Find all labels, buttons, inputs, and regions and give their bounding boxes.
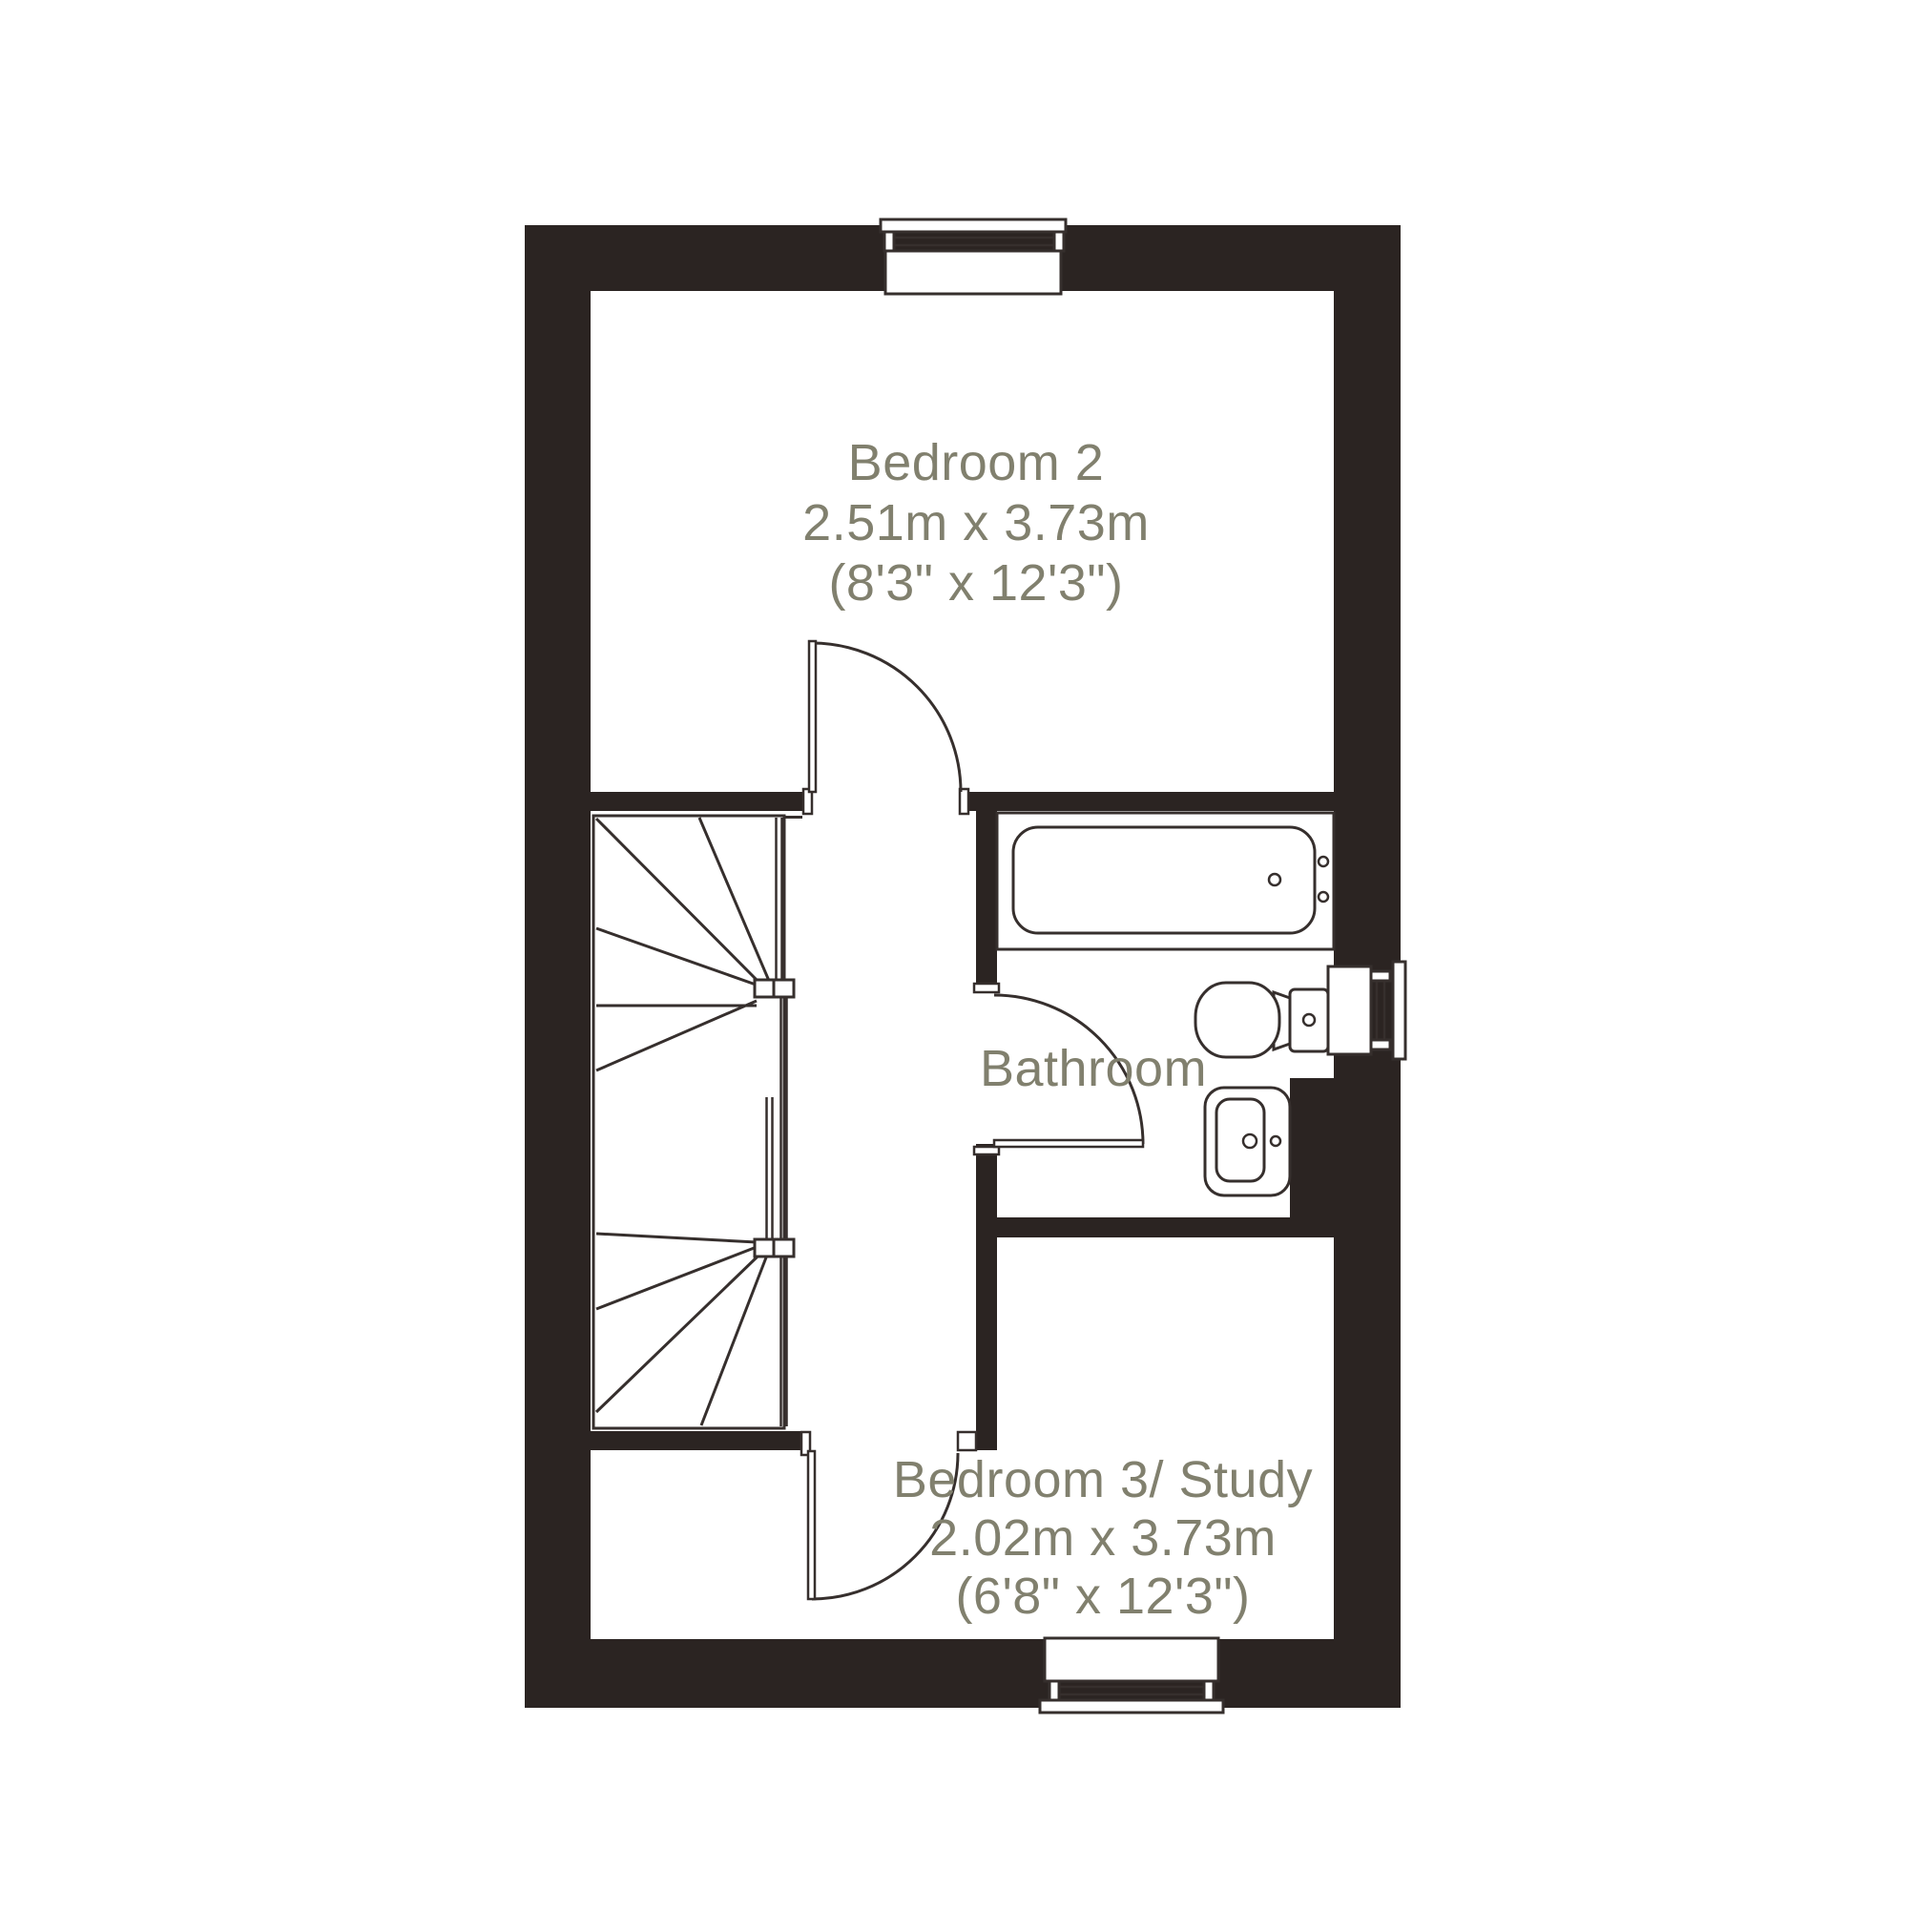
jamb [960, 789, 968, 814]
wall-bathroom-west-upper [976, 811, 997, 992]
room-name: Bedroom 2 [690, 433, 1262, 493]
wall-bedroom2-south-left [591, 792, 806, 811]
door-swing-arc [812, 643, 961, 792]
room-size-imperial: (8'3" x 12'3") [690, 553, 1262, 613]
room-label-bathroom: Bathroom [855, 1042, 1332, 1095]
sink-symbol [1205, 1088, 1290, 1195]
room-size-metric: 2.02m x 3.73m [817, 1509, 1389, 1568]
room-name: Bedroom 3/ Study [817, 1451, 1389, 1509]
wall-bathroom-south [997, 1217, 1290, 1237]
door-leaf [994, 1140, 1143, 1147]
wall-bottom [525, 1639, 1401, 1708]
window-right [1328, 962, 1405, 1059]
door-leaf [808, 1451, 815, 1599]
room-size-imperial: (6'8" x 12'3") [817, 1568, 1389, 1626]
wall-chimney-block [1290, 1078, 1334, 1237]
floor-plan: Bedroom 2 2.51m x 3.73m (8'3" x 12'3") B… [0, 0, 1932, 1932]
bath-drain [1269, 874, 1280, 885]
sink-drain [1243, 1134, 1257, 1148]
wall-bathroom-west-lower [976, 1144, 997, 1450]
floor-plan-graphic [0, 0, 1932, 1932]
room-label-bedroom-2: Bedroom 2 2.51m x 3.73m (8'3" x 12'3") [690, 433, 1262, 613]
wall-left [525, 225, 591, 1708]
jamb [974, 984, 999, 992]
wall-bathroom-north [966, 792, 1334, 811]
sink-tap [1271, 1136, 1280, 1146]
bedroom2-door [809, 641, 961, 792]
room-name: Bathroom [855, 1042, 1332, 1095]
staircase-symbol [593, 816, 802, 1428]
wall-stairs-south [591, 1431, 806, 1450]
door-jambs [801, 789, 999, 1455]
bathtub-symbol [997, 813, 1334, 949]
jamb [958, 1432, 976, 1450]
bath-tap [1319, 892, 1328, 902]
room-label-bedroom-3-study: Bedroom 3/ Study 2.02m x 3.73m (6'8" x 1… [817, 1451, 1389, 1626]
stair-enclosure [593, 816, 784, 1428]
bath-tap [1319, 857, 1328, 866]
window-top [881, 219, 1066, 294]
door-leaf [809, 641, 816, 792]
room-size-metric: 2.51m x 3.73m [690, 493, 1262, 553]
toilet-button [1303, 1014, 1315, 1026]
window-bottom [1040, 1638, 1223, 1713]
